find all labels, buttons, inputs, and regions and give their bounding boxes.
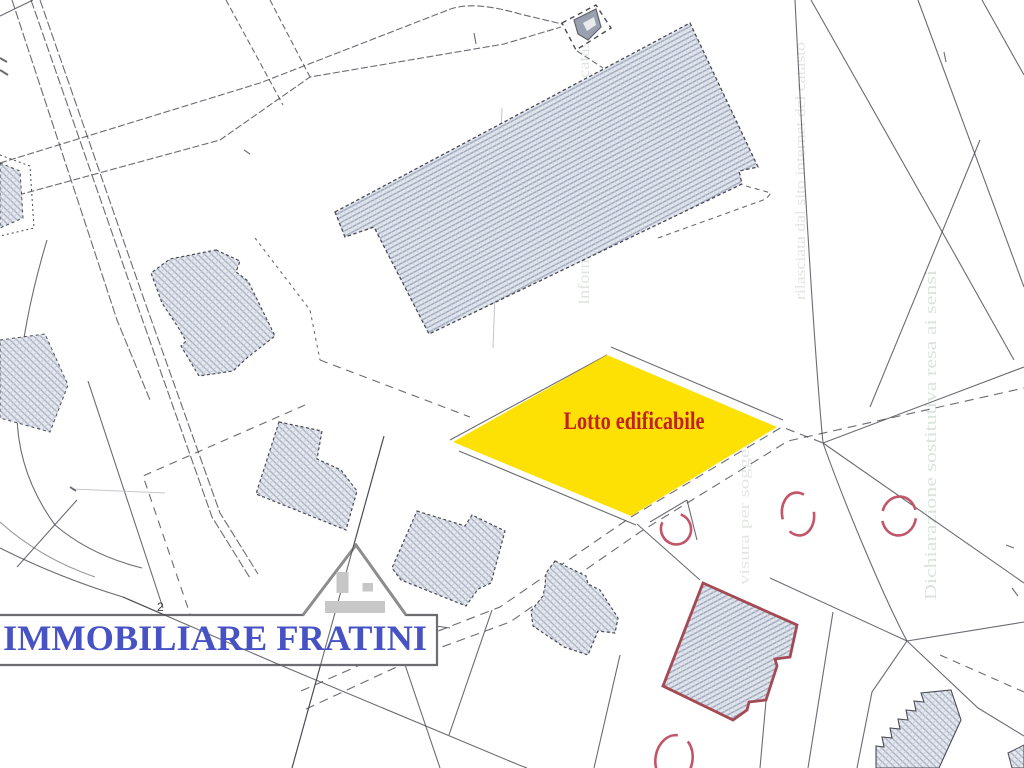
svg-text:Dichiarazione sostitutiva resa: Dichiarazione sostitutiva resa ai sensi <box>921 270 940 600</box>
svg-text:IMMOBILIARE FRATINI: IMMOBILIARE FRATINI <box>3 618 427 658</box>
svg-text:Lotto edificabile: Lotto edificabile <box>564 408 705 435</box>
svg-text:rilasciata dal sito internet d: rilasciata dal sito internet del catasto <box>793 42 809 300</box>
svg-text:2: 2 <box>157 600 164 614</box>
svg-text:visura per soggetto: visura per soggetto <box>737 427 753 585</box>
